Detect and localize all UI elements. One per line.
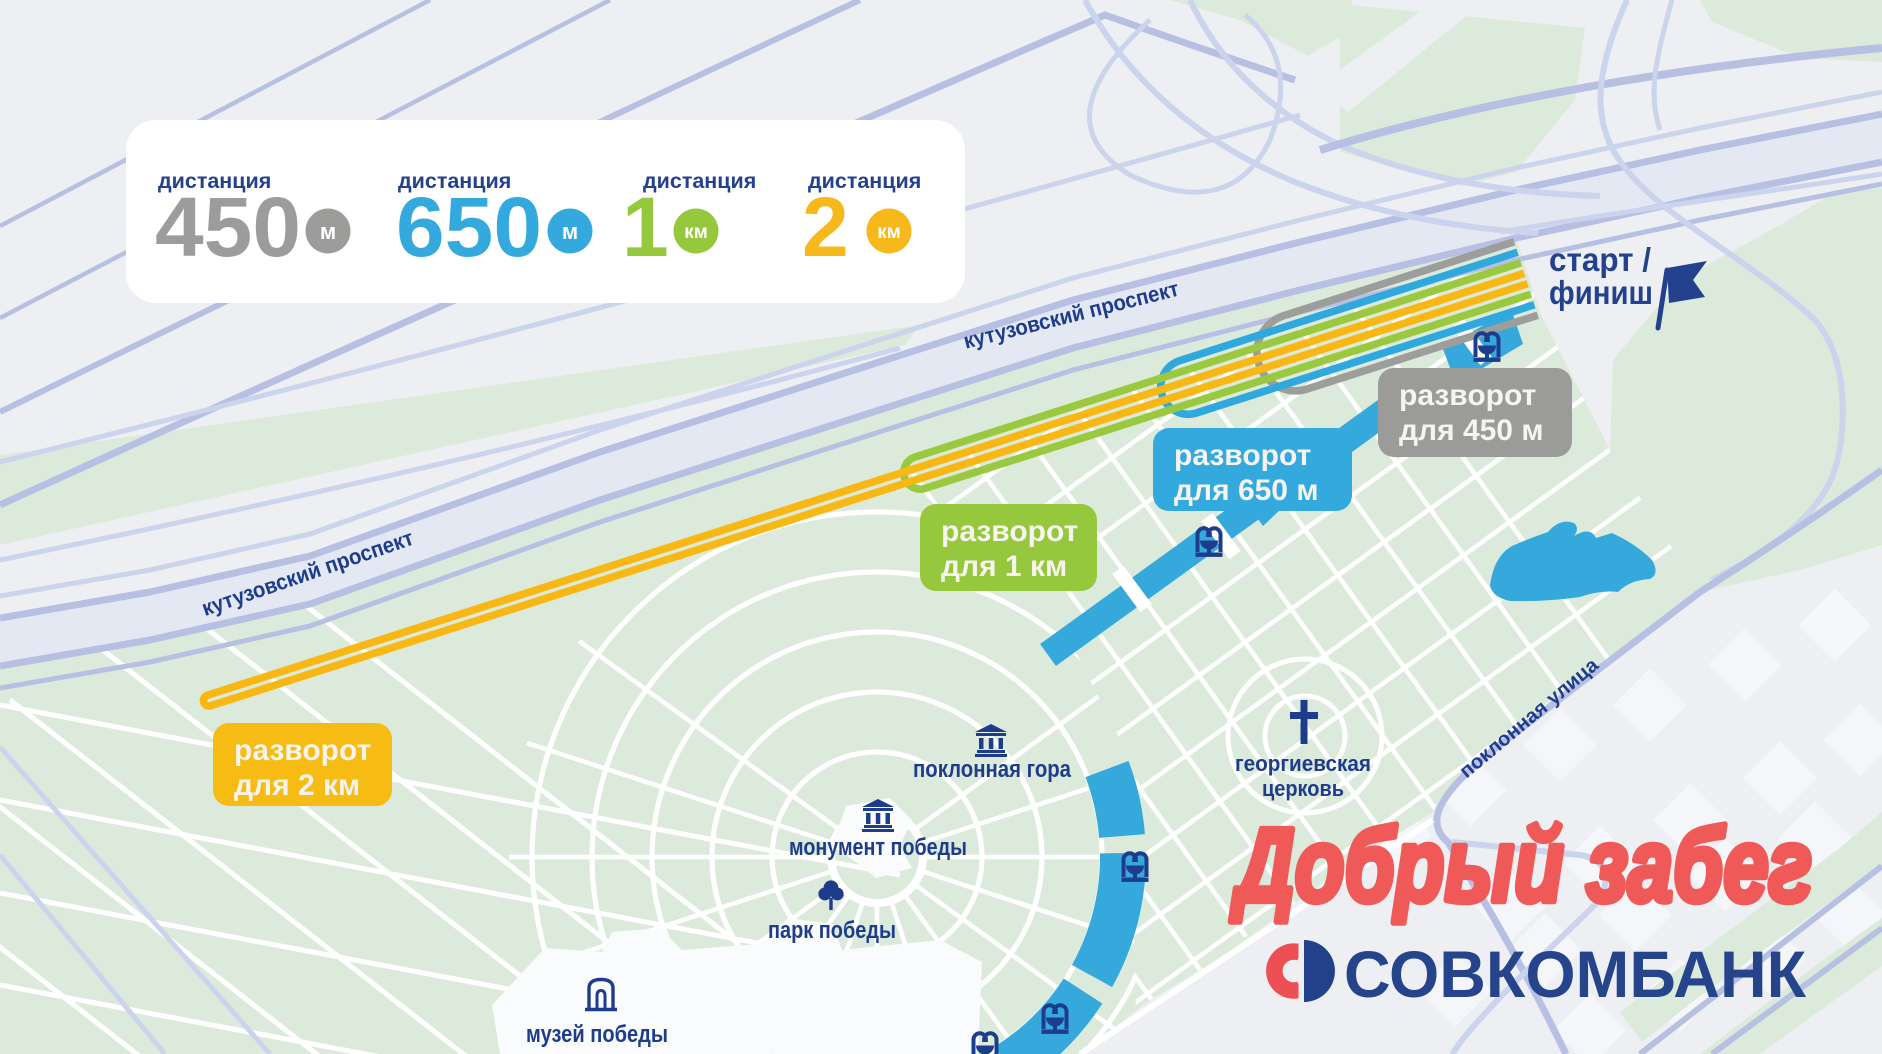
svg-text:разворот: разворот — [941, 515, 1078, 548]
svg-text:георгиевская: георгиевская — [1235, 751, 1371, 776]
svg-text:450: 450 — [155, 180, 301, 274]
svg-text:2: 2 — [802, 180, 849, 274]
svg-text:поклонная гора: поклонная гора — [913, 756, 1072, 783]
svg-text:м: м — [320, 219, 336, 244]
svg-text:старт /: старт / — [1549, 241, 1651, 278]
svg-text:разворот: разворот — [1399, 379, 1536, 412]
svg-text:парк победы: парк победы — [768, 917, 896, 944]
svg-text:м: м — [562, 219, 578, 244]
svg-text:для 450 м: для 450 м — [1399, 414, 1544, 447]
svg-text:км: км — [877, 222, 901, 243]
svg-text:разворот: разворот — [1174, 439, 1311, 472]
svg-text:разворот: разворот — [234, 734, 371, 767]
svg-text:650: 650 — [396, 180, 542, 274]
svg-text:СОВКОМБАНК: СОВКОМБАНК — [1344, 937, 1807, 1011]
svg-text:для 2 км: для 2 км — [234, 769, 360, 802]
svg-text:для 650 м: для 650 м — [1174, 474, 1319, 507]
svg-text:Добрый забег: Добрый забег — [1230, 808, 1812, 924]
svg-text:для 1 км: для 1 км — [941, 550, 1067, 583]
svg-text:финиш: финиш — [1549, 274, 1653, 311]
svg-text:музей победы: музей победы — [526, 1021, 668, 1048]
svg-text:церковь: церковь — [1262, 776, 1344, 801]
svg-text:км: км — [684, 222, 708, 243]
svg-text:монумент победы: монумент победы — [789, 834, 967, 861]
svg-text:1: 1 — [622, 180, 669, 274]
